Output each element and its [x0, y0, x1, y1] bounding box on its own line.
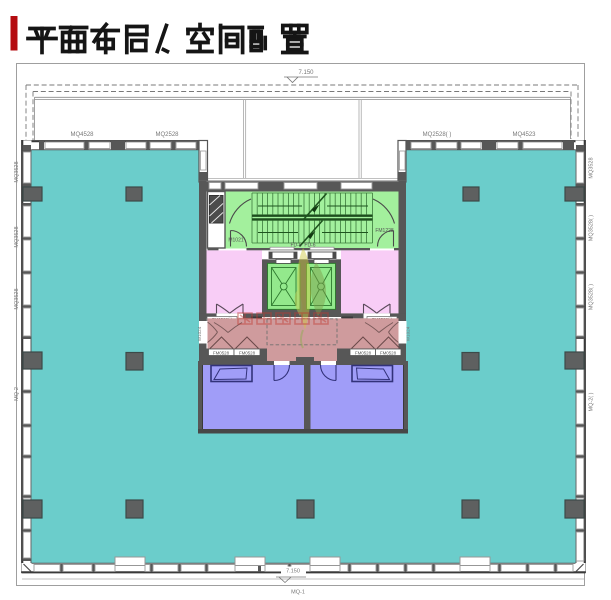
svg-text:FM0528: FM0528 — [380, 350, 397, 355]
svg-text:W1024: W1024 — [197, 326, 202, 341]
svg-text:MQ2528( ): MQ2528( ) — [423, 132, 452, 138]
svg-text:FM1228: FM1228 — [375, 228, 394, 234]
svg-text:MQ-2( ): MQ-2( ) — [589, 392, 595, 411]
svg-text:MQ3528( ): MQ3528( ) — [589, 215, 595, 241]
svg-text:FD-6 FD-6: FD-6 FD-6 — [291, 243, 316, 249]
svg-text:MQ4528: MQ4528 — [70, 132, 94, 138]
svg-text:MQ3528: MQ3528 — [14, 226, 20, 247]
svg-text:FM0528: FM0528 — [239, 350, 256, 355]
svg-text:MQ3528: MQ3528 — [14, 161, 20, 182]
svg-text:MQ2528: MQ2528 — [155, 132, 179, 138]
svg-text:W1024: W1024 — [406, 326, 411, 341]
svg-text:MQ3528( ): MQ3528( ) — [589, 284, 595, 310]
svg-text:MQ3528: MQ3528 — [589, 157, 595, 178]
svg-text:7.150: 7.150 — [298, 70, 314, 76]
svg-text:FM0528: FM0528 — [213, 350, 230, 355]
svg-text:7.150: 7.150 — [286, 568, 300, 574]
svg-text:M1021: M1021 — [228, 238, 244, 244]
svg-text:MQ-2: MQ-2 — [14, 387, 20, 401]
svg-text:MQ4523: MQ4523 — [512, 132, 536, 138]
svg-text:FM0528: FM0528 — [355, 350, 372, 355]
svg-text:MQ-1: MQ-1 — [291, 590, 305, 596]
svg-text:MQ3528: MQ3528 — [14, 288, 20, 309]
